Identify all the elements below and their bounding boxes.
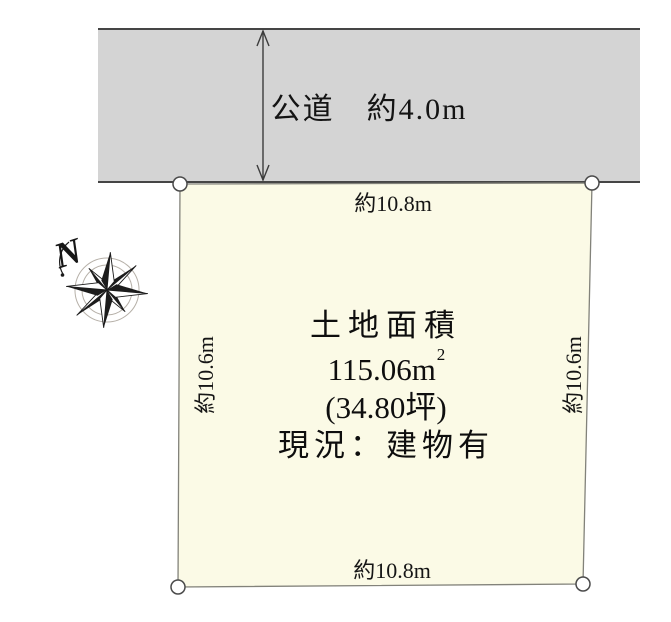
parcel-area: 115.06m2 — [278, 345, 494, 389]
compass-rose-icon: N — [40, 226, 153, 331]
dimension-left: 約10.6m — [188, 336, 220, 414]
north-letter: N — [48, 229, 88, 276]
dimension-bottom: 約10.8m — [353, 553, 431, 585]
parcel-status: 現況：建物有 — [278, 427, 494, 465]
dimension-right: 約10.6m — [556, 336, 588, 414]
dimension-top: 約10.8m — [354, 186, 432, 218]
parcel-area-tsubo: (34.80坪) — [278, 389, 494, 427]
boundary-point-sw — [171, 580, 185, 594]
parcel-area-unit: m — [412, 352, 436, 387]
road-label: 公道 約4.0m — [98, 28, 640, 183]
boundary-point-se — [576, 577, 590, 591]
parcel-info: 土地面積 115.06m2 (34.80坪) 現況：建物有 — [278, 307, 494, 465]
parcel-info-title: 土地面積 — [278, 307, 494, 345]
parcel-area-unit-exponent: 2 — [437, 344, 446, 363]
parcel-area-value: 115.06 — [328, 352, 412, 387]
land-plot-diagram: N 公道 約4.0m 約10.8m 約10.8m 約10.6m 約10.6m 土… — [0, 0, 671, 622]
